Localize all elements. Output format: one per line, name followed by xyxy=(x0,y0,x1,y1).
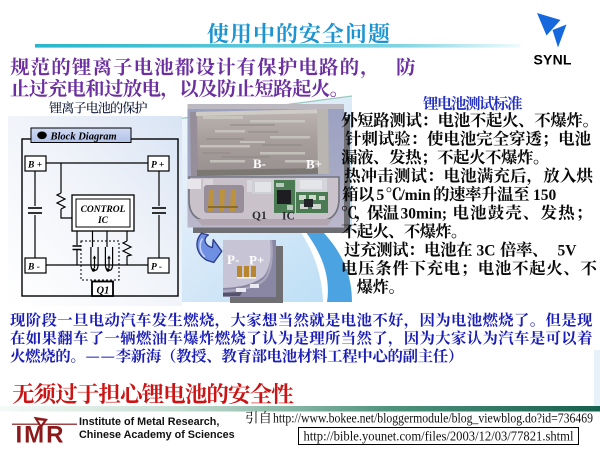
svg-text:B +: B + xyxy=(27,161,42,171)
svg-text:150: 150 xyxy=(533,187,557,204)
svg-text:CONTROL: CONTROL xyxy=(81,205,126,215)
svg-text:P +: P + xyxy=(151,161,164,171)
svg-text:Q1: Q1 xyxy=(252,210,267,222)
svg-text:30min;: 30min; xyxy=(401,206,448,223)
svg-text:P+: P+ xyxy=(249,253,264,268)
svg-text:P-: P- xyxy=(227,252,239,267)
svg-text:Block Diagram: Block Diagram xyxy=(50,132,117,143)
svg-text:B-: B- xyxy=(253,156,266,171)
svg-text:B -: B - xyxy=(27,263,40,273)
svg-text:IC: IC xyxy=(282,211,295,223)
svg-text:5V: 5V xyxy=(558,243,578,260)
svg-text:/min: /min xyxy=(400,187,432,204)
svg-text:5: 5 xyxy=(377,187,385,204)
svg-text:http://bible.younet.com/files/: http://bible.younet.com/files/2003/12/03… xyxy=(304,429,574,444)
svg-text:3C: 3C xyxy=(477,243,496,260)
svg-text:P -: P - xyxy=(151,263,162,273)
svg-text:Institute of Metal Research,: Institute of Metal Research, xyxy=(79,416,219,428)
svg-text:http://www.bokee.net/bloggermo: http://www.bokee.net/bloggermodule/blog_… xyxy=(273,411,593,426)
svg-text:SYNL: SYNL xyxy=(534,52,572,68)
svg-text:IC: IC xyxy=(97,216,109,226)
svg-text:Chinese Academy of Sciences: Chinese Academy of Sciences xyxy=(79,429,235,441)
svg-text:Q1: Q1 xyxy=(97,286,110,297)
svg-text:B+: B+ xyxy=(306,157,322,172)
